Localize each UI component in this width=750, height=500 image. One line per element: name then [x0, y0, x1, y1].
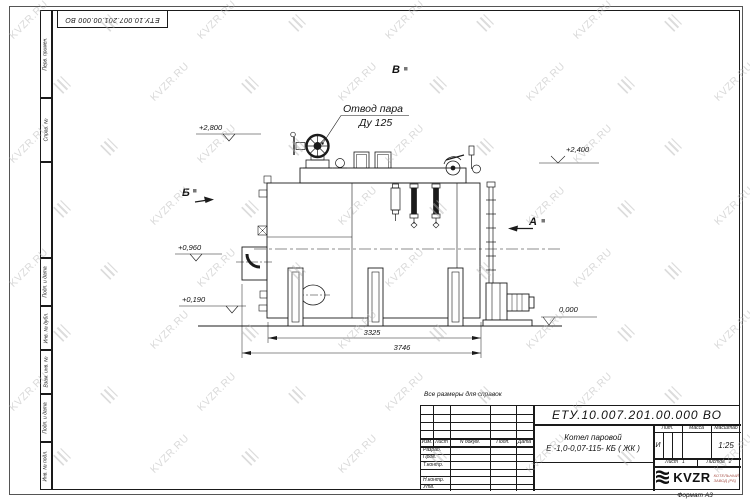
- level-2400: +2,400: [566, 145, 590, 154]
- steam-valve: [291, 132, 332, 168]
- tb-lit-value: И: [653, 432, 663, 458]
- level-0960: +0,960: [178, 243, 202, 252]
- level-0190: +0,190: [182, 295, 206, 304]
- level-0000: 0,000: [559, 305, 579, 314]
- dim-3746: 3746: [394, 343, 412, 352]
- hatches: [354, 152, 391, 168]
- sheets-value: 2: [729, 459, 732, 465]
- tb-scale-label: Масштаб: [711, 424, 741, 432]
- title-block: Изм. Лист N докум. Подп. Дата Разраб. Пр…: [420, 405, 740, 490]
- tb-line: [490, 406, 491, 491]
- format-label: Формат А3: [630, 492, 750, 499]
- tb-sheet-cell: Лист 1: [653, 458, 697, 466]
- tb-role-razrab: Разраб.: [421, 446, 450, 454]
- tb-line: [421, 430, 533, 431]
- level-gauges: [391, 184, 440, 228]
- tb-header-list: Лист: [433, 438, 450, 446]
- product-name-line2: Е -1,0-0,07-115- КБ ( ЖК ): [546, 443, 640, 454]
- tb-header-data: Дата: [516, 438, 533, 446]
- tb-sheets-cell: Листов 2: [697, 458, 741, 466]
- dim-3325: 3325: [364, 328, 382, 337]
- tb-line: [421, 422, 533, 423]
- tb-line: [516, 406, 517, 491]
- steam-outlet-label: Отвод пара: [343, 103, 403, 115]
- tb-line: [663, 432, 664, 458]
- tb-mass-label: Масса: [682, 424, 711, 432]
- tb-doc-number: ЕТУ.10.007.201.00.000 ВО: [533, 406, 741, 424]
- tb-header-podp: Подп.: [490, 438, 516, 446]
- view-labels: Б В А: [182, 64, 545, 232]
- brand-name: KVZR: [673, 470, 710, 485]
- steam-outlet-callout: Отвод пара Ду 125: [321, 103, 409, 145]
- sheets-label: Листов: [707, 459, 725, 465]
- tb-line: [421, 414, 533, 415]
- brand-subtitle-line2: ЗАВОД (РБ): [714, 478, 737, 483]
- view-label-b: Б: [182, 187, 190, 199]
- tb-line: [672, 432, 673, 458]
- top-platform: [300, 159, 466, 184]
- kvzr-logo-icon: [655, 470, 670, 485]
- tb-line: [450, 406, 451, 491]
- tb-line: [421, 469, 533, 470]
- fan-assembly: [483, 283, 534, 326]
- burner: [236, 247, 272, 280]
- safety-valve: [444, 146, 481, 175]
- tb-product-name: Котел паровой Е -1,0-0,07-115- КБ ( ЖК ): [533, 424, 653, 462]
- tb-line: [533, 462, 653, 463]
- tb-header-ndokum: N докум.: [450, 438, 490, 446]
- sheet-value: 1: [682, 459, 685, 465]
- sheet-label: Лист: [665, 459, 678, 465]
- support-legs: [288, 268, 463, 326]
- tb-role-nkontr: Н.контр.: [421, 476, 450, 484]
- tb-header-izm: Изм.: [421, 438, 433, 446]
- level-2800: +2,800: [199, 123, 223, 132]
- product-name-line1: Котел паровой: [564, 432, 621, 443]
- steam-outlet-dn: Ду 125: [358, 117, 392, 129]
- view-label-v: В: [392, 64, 400, 76]
- view-label-a: А: [528, 216, 537, 228]
- tb-role-utv: Утв.: [421, 484, 450, 492]
- tb-role-prov: Пров.: [421, 454, 450, 462]
- tb-lit-label: Лит.: [653, 424, 682, 432]
- brand-subtitle: КОТЕЛЬНЫЙ ЗАВОД (РБ): [714, 473, 739, 483]
- tb-role-tkontr: Т.контр.: [421, 461, 450, 469]
- tb-scale-value: 1:25: [711, 432, 741, 458]
- dimensions: 3325 3746: [242, 284, 481, 358]
- reference-dimensions-note: Все размеры для справок: [424, 391, 554, 398]
- tb-brand-cell: KVZR КОТЕЛЬНЫЙ ЗАВОД (РБ): [653, 466, 741, 489]
